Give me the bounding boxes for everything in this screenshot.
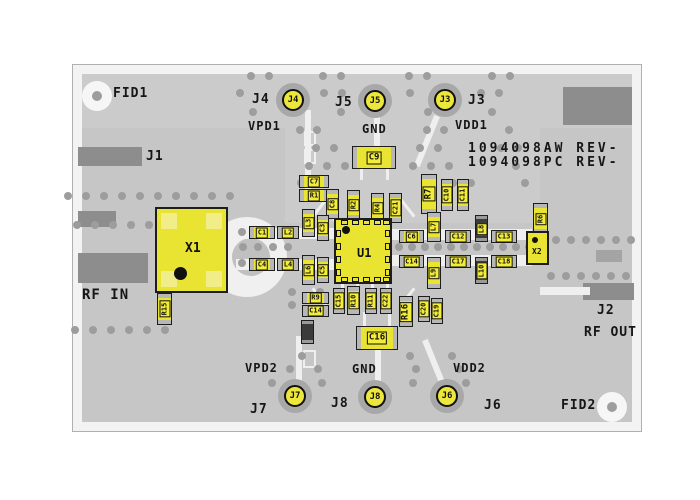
component-L6: L6	[302, 255, 315, 285]
ground-via	[440, 126, 448, 134]
ground-via	[288, 288, 296, 296]
copper-trace	[360, 168, 363, 180]
component-R1: R1	[299, 189, 329, 202]
component-C18: C18	[491, 255, 517, 268]
ground-via	[323, 162, 331, 170]
ground-via	[592, 272, 600, 280]
ground-via	[423, 72, 431, 80]
silk-text-j4-label: J4	[252, 92, 270, 107]
pad-label-j4: J4	[282, 89, 304, 111]
copper-trace	[388, 312, 391, 327]
component-C20: C20	[418, 296, 430, 322]
component-label-c12: C12	[450, 231, 467, 242]
ground-via	[597, 236, 605, 244]
silk-text-j1-label: J1	[146, 149, 164, 164]
component-label-c11: C11	[458, 187, 469, 204]
ic-pin	[374, 277, 381, 282]
dark-pad-block	[78, 147, 142, 166]
component-label-r2: R2	[348, 199, 359, 211]
ground-via	[91, 221, 99, 229]
fiducial-pad-fid1	[82, 81, 112, 111]
ground-via	[313, 126, 321, 134]
ground-via	[136, 192, 144, 200]
ground-via	[89, 326, 97, 334]
ground-via	[239, 243, 247, 251]
component-C1: C1	[249, 226, 275, 239]
component-label-c6: C6	[405, 231, 417, 242]
ground-via	[405, 72, 413, 80]
component-C22: C22	[380, 288, 392, 314]
ground-via	[284, 243, 292, 251]
ic-corner-pad	[206, 213, 222, 229]
component-C13: C13	[491, 230, 517, 243]
ground-via	[427, 162, 435, 170]
pcb-photo: J4J5J3J7J8J6C9C7R1C8R2R4C21R7C10C11C1L2L…	[0, 0, 700, 500]
ground-via	[318, 379, 326, 387]
component-label-c7: C7	[308, 176, 320, 187]
ground-via	[109, 221, 117, 229]
ground-via	[190, 192, 198, 200]
dark-pad-block	[78, 253, 148, 283]
ground-via	[448, 352, 456, 360]
ground-via	[627, 236, 635, 244]
ground-via	[100, 192, 108, 200]
pad-j8: J8	[358, 380, 392, 414]
ground-via	[577, 272, 585, 280]
pad-j4: J4	[276, 83, 310, 117]
ic-label-x1: X1	[185, 241, 201, 256]
component-label-l3: L3	[303, 217, 314, 229]
ground-via	[473, 243, 481, 251]
ground-via	[254, 243, 262, 251]
dark-pad-block	[583, 283, 634, 300]
ground-via	[421, 243, 429, 251]
component-label-c4: C4	[256, 259, 268, 270]
pad-label-j7: J7	[284, 385, 306, 407]
ground-via	[312, 144, 320, 152]
ground-via	[622, 272, 630, 280]
component-label-c14: C14	[403, 256, 420, 267]
component-label-r11: R11	[366, 293, 377, 310]
component-R10: R10	[347, 286, 360, 315]
component-C4: C4	[249, 258, 275, 271]
ground-via	[486, 243, 494, 251]
component-label-c3: C3	[318, 222, 329, 234]
component-C16: C16	[356, 326, 398, 350]
silk-text-fid1: FID1	[113, 86, 148, 101]
silk-text-part-number-1: 1094098AW REV-	[468, 141, 620, 156]
ground-via	[265, 72, 273, 80]
silk-text-gnd-bottom: GND	[352, 362, 377, 376]
component-C10: C10	[441, 179, 453, 211]
ground-via	[73, 221, 81, 229]
ground-via	[552, 236, 560, 244]
pin1-dot	[174, 267, 187, 280]
fiducial-pad-fid2	[597, 392, 627, 422]
component-R7: R7	[421, 174, 437, 214]
component-C6: C6	[399, 230, 424, 243]
component-label-r1: R1	[308, 190, 320, 201]
component-label-c10: C10	[442, 187, 453, 204]
component-label-l9: L9	[429, 267, 440, 279]
component-C15: C15	[333, 288, 345, 314]
ic-pin	[341, 220, 348, 225]
pad-j6: J6	[430, 379, 464, 413]
ground-via	[143, 326, 151, 334]
component-C17: C17	[445, 255, 471, 268]
silk-text-j6-label: J6	[484, 398, 502, 413]
component-R2: R2	[347, 190, 360, 220]
ic-pin	[363, 220, 370, 225]
ground-via	[395, 243, 403, 251]
dark-pad-block	[563, 87, 632, 125]
fiducial-dot	[607, 402, 617, 412]
ground-via	[506, 72, 514, 80]
ic-pin	[385, 269, 390, 276]
ground-via	[208, 192, 216, 200]
ic-corner-pad	[206, 271, 222, 287]
component-label-r9: R9	[309, 293, 321, 304]
component-L2: L2	[277, 226, 299, 239]
component-C3: C3	[317, 215, 329, 241]
ic-pin	[336, 243, 341, 250]
pad-label-j3: J3	[434, 89, 456, 111]
component-label-c13: C13	[496, 231, 513, 242]
ic-pin	[336, 256, 341, 263]
ground-via	[296, 126, 304, 134]
component-label-l6: L6	[303, 264, 314, 276]
ic-pin	[341, 277, 348, 282]
ground-via	[337, 72, 345, 80]
ic-pin	[374, 220, 381, 225]
ground-via	[406, 89, 414, 97]
component-C12: C12	[445, 230, 471, 243]
component-label-c20: C20	[419, 301, 430, 318]
component-unlabeled	[301, 320, 314, 344]
ic-x2: X2	[526, 231, 549, 265]
ground-via	[161, 326, 169, 334]
ground-via	[107, 326, 115, 334]
ic-label-u1: U1	[357, 246, 371, 260]
component-label-c14: C14	[307, 306, 324, 317]
ground-via	[445, 162, 453, 170]
ground-via	[269, 243, 277, 251]
ground-via	[236, 89, 244, 97]
ic-pin	[352, 220, 359, 225]
ground-via	[226, 192, 234, 200]
ic-pin	[336, 269, 341, 276]
ground-via	[247, 72, 255, 80]
ground-via	[118, 192, 126, 200]
ground-via	[406, 352, 414, 360]
ground-via	[495, 89, 503, 97]
ground-via	[409, 162, 417, 170]
copper-trace	[540, 287, 590, 295]
component-L8: L8	[475, 215, 488, 242]
ground-via	[341, 162, 349, 170]
component-L9: L9	[427, 257, 441, 289]
ground-via	[416, 144, 424, 152]
component-label-c21: C21	[390, 200, 401, 217]
ic-pin	[385, 243, 390, 250]
silk-text-j7-label: J7	[250, 402, 268, 417]
ground-via	[305, 162, 313, 170]
ground-via	[238, 228, 246, 236]
component-label-c5: C5	[318, 264, 329, 276]
component-label-c17: C17	[450, 256, 467, 267]
ic-x1: X1	[155, 207, 228, 293]
copper-trace	[386, 168, 389, 180]
ground-via	[505, 126, 513, 134]
ground-via	[567, 236, 575, 244]
fiducial-dot	[92, 91, 102, 101]
component-label-l8: L8	[476, 222, 487, 234]
dark-pad-block	[596, 250, 622, 262]
component-C14-2: C14	[302, 305, 329, 317]
ground-via	[145, 221, 153, 229]
ic-pin	[336, 230, 341, 237]
component-label-r16: R16	[400, 301, 413, 321]
ground-via	[521, 179, 529, 187]
silk-text-rf-out: RF OUT	[584, 325, 637, 340]
ground-via	[71, 326, 79, 334]
ground-via	[547, 272, 555, 280]
silk-text-gnd-top: GND	[362, 122, 387, 136]
pad-j7: J7	[278, 379, 312, 413]
component-R11: R11	[365, 288, 377, 314]
ic-label-x2: X2	[532, 247, 542, 256]
component-R6: R6	[533, 203, 548, 234]
component-R9: R9	[302, 292, 329, 304]
ic-corner-pad	[161, 213, 177, 229]
component-label-l4: L4	[282, 259, 294, 270]
pin1-dot	[342, 226, 350, 234]
silk-text-rf-in: RF IN	[82, 287, 129, 303]
copper-trace	[363, 312, 366, 327]
component-R15: R15	[157, 293, 172, 325]
silk-text-vpd1: VPD1	[248, 119, 281, 133]
component-R16: R16	[399, 296, 413, 327]
ground-via	[314, 365, 322, 373]
component-label-c9: C9	[367, 151, 382, 164]
component-label-l10: L10	[476, 262, 487, 279]
ic-pin	[352, 277, 359, 282]
ground-via	[82, 192, 90, 200]
ground-via	[288, 301, 296, 309]
ground-via	[286, 365, 294, 373]
component-label-c1: C1	[256, 227, 268, 238]
component-label-c15: C15	[334, 293, 345, 310]
pad-label-j5: J5	[364, 90, 386, 112]
pour-highlight	[82, 74, 632, 128]
ground-via	[488, 108, 496, 116]
ground-via	[499, 243, 507, 251]
ground-via	[154, 192, 162, 200]
ground-via	[125, 326, 133, 334]
component-label-r10: R10	[348, 292, 359, 309]
component-label-r4: R4	[372, 202, 383, 214]
ic-pin	[385, 230, 390, 237]
pad-label-j6: J6	[436, 385, 458, 407]
component-label-l7: L7	[429, 221, 440, 233]
ground-via	[460, 243, 468, 251]
ground-via	[512, 243, 520, 251]
component-L10: L10	[475, 257, 488, 284]
ground-via	[582, 236, 590, 244]
ground-via	[330, 144, 338, 152]
ground-via	[319, 72, 327, 80]
component-label-c18: C18	[496, 256, 513, 267]
pad-label-j8: J8	[364, 386, 386, 408]
ground-via	[249, 108, 257, 116]
component-label-c22: C22	[381, 293, 392, 310]
silk-text-vpd2: VPD2	[245, 361, 278, 375]
component-label-r6: R6	[535, 212, 546, 224]
component-C19: C19	[431, 298, 443, 324]
silk-text-j3-label: J3	[468, 93, 486, 108]
ic-pin	[383, 220, 390, 225]
silk-text-fid2: FID2	[561, 398, 596, 413]
silk-text-j5-label: J5	[335, 95, 353, 110]
silk-text-vdd1: VDD1	[455, 118, 488, 132]
component-label-r15: R15	[159, 301, 170, 318]
component-C5: C5	[317, 257, 329, 283]
component-C11: C11	[457, 179, 469, 211]
silk-text-vdd2: VDD2	[453, 361, 486, 375]
ground-via	[172, 192, 180, 200]
component-C9: C9	[352, 146, 396, 169]
pad-j3: J3	[428, 83, 462, 117]
ground-via	[127, 221, 135, 229]
component-label-r7: R7	[423, 187, 436, 202]
ic-pin	[363, 277, 370, 282]
ground-via	[412, 365, 420, 373]
component-L4: L4	[277, 258, 299, 271]
ground-via	[409, 379, 417, 387]
component-C7: C7	[299, 175, 329, 188]
ground-via	[238, 259, 246, 267]
ground-via	[488, 72, 496, 80]
silk-text-part-number-2: 1094098PC REV-	[468, 155, 620, 170]
ground-via	[447, 243, 455, 251]
ground-via	[423, 126, 431, 134]
component-L7: L7	[427, 212, 441, 242]
ground-via	[607, 272, 615, 280]
pin1-dot	[532, 237, 538, 243]
ground-via	[434, 144, 442, 152]
component-label-c16: C16	[367, 332, 387, 345]
ground-via	[408, 243, 416, 251]
ground-via	[462, 379, 470, 387]
ic-pin	[383, 277, 390, 282]
silk-text-j8-label: J8	[331, 396, 349, 411]
ground-via	[64, 192, 72, 200]
ground-via	[612, 236, 620, 244]
ground-via	[298, 352, 306, 360]
pad-j5: J5	[358, 84, 392, 118]
silk-text-j2-label: J2	[597, 303, 615, 318]
ic-u1: U1	[334, 218, 392, 284]
component-C14: C14	[399, 255, 424, 268]
ground-via	[320, 89, 328, 97]
ground-via	[268, 379, 276, 387]
component-label-l2: L2	[282, 227, 294, 238]
component-label-c8: C8	[327, 198, 338, 210]
component-label-c19: C19	[432, 303, 443, 320]
component-L3: L3	[302, 209, 315, 237]
ground-via	[562, 272, 570, 280]
ground-via	[434, 243, 442, 251]
ic-pin	[385, 256, 390, 263]
